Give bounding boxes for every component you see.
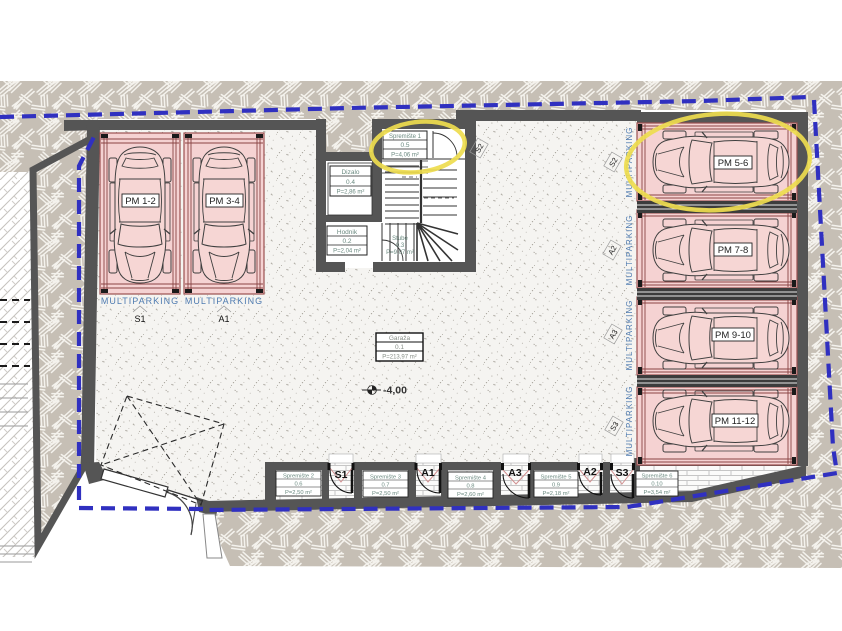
svg-text:P=2,18 m²: P=2,18 m²	[543, 491, 570, 497]
svg-text:MULTIPARKING: MULTIPARKING	[625, 300, 634, 371]
svg-text:Spremište 5: Spremište 5	[541, 475, 572, 481]
svg-text:Hodnik: Hodnik	[337, 229, 358, 236]
svg-text:S1: S1	[134, 314, 145, 324]
svg-text:PM 9-10: PM 9-10	[715, 330, 751, 341]
svg-text:Dizalo: Dizalo	[341, 169, 359, 176]
svg-text:P=4,06 m²: P=4,06 m²	[391, 153, 419, 159]
svg-text:PM 5-6: PM 5-6	[718, 158, 749, 169]
svg-text:PM 7-8: PM 7-8	[718, 245, 749, 256]
svg-text:0.7: 0.7	[381, 483, 389, 489]
svg-text:Stube: Stube	[392, 236, 408, 242]
svg-text:Spremište 3: Spremište 3	[370, 475, 401, 481]
svg-text:PM 3-4: PM 3-4	[209, 196, 240, 207]
svg-text:MULTIPARKING: MULTIPARKING	[625, 386, 634, 457]
svg-text:A2: A2	[583, 466, 597, 478]
svg-text:P=213,97 m²: P=213,97 m²	[382, 355, 417, 361]
svg-text:MULTIPARKING: MULTIPARKING	[625, 215, 634, 286]
svg-text:S3: S3	[616, 467, 629, 479]
svg-text:0.3: 0.3	[396, 243, 405, 249]
svg-text:A3: A3	[508, 467, 522, 479]
svg-text:Spremište 1: Spremište 1	[389, 134, 422, 140]
svg-text:P=2,04 m²: P=2,04 m²	[333, 249, 361, 255]
svg-text:MULTIPARKING: MULTIPARKING	[185, 296, 263, 306]
svg-text:0.2: 0.2	[342, 238, 351, 245]
svg-text:Garaža: Garaža	[389, 335, 411, 342]
svg-text:0.9: 0.9	[552, 483, 560, 489]
svg-text:P=2,86 m²: P=2,86 m²	[337, 190, 365, 196]
svg-text:S1: S1	[335, 469, 348, 481]
svg-text:PM 1-2: PM 1-2	[125, 196, 156, 207]
svg-text:Spremište 2: Spremište 2	[283, 474, 314, 480]
svg-text:0.4: 0.4	[346, 179, 355, 186]
svg-text:Spremište 4: Spremište 4	[455, 476, 487, 482]
svg-text:P=2,60 m²: P=2,60 m²	[457, 492, 484, 498]
svg-text:A1: A1	[421, 467, 435, 479]
svg-text:A1: A1	[218, 314, 229, 324]
svg-text:0.5: 0.5	[400, 142, 409, 149]
svg-text:0.10: 0.10	[651, 482, 662, 488]
svg-text:-4,00: -4,00	[383, 385, 407, 397]
svg-text:P=3,54 m²: P=3,54 m²	[644, 490, 671, 496]
svg-text:0.6: 0.6	[294, 482, 302, 488]
svg-text:P=2,50 m²: P=2,50 m²	[372, 491, 399, 497]
svg-text:0.1: 0.1	[395, 344, 404, 351]
svg-text:P=2,50 m²: P=2,50 m²	[285, 490, 312, 496]
svg-text:0.8: 0.8	[466, 484, 474, 490]
svg-text:PM 11-12: PM 11-12	[715, 416, 755, 427]
svg-text:Spremište 6: Spremište 6	[642, 474, 673, 480]
svg-text:P=9,07 m²: P=9,07 m²	[386, 250, 414, 256]
svg-text:MULTIPARKING: MULTIPARKING	[101, 296, 179, 306]
